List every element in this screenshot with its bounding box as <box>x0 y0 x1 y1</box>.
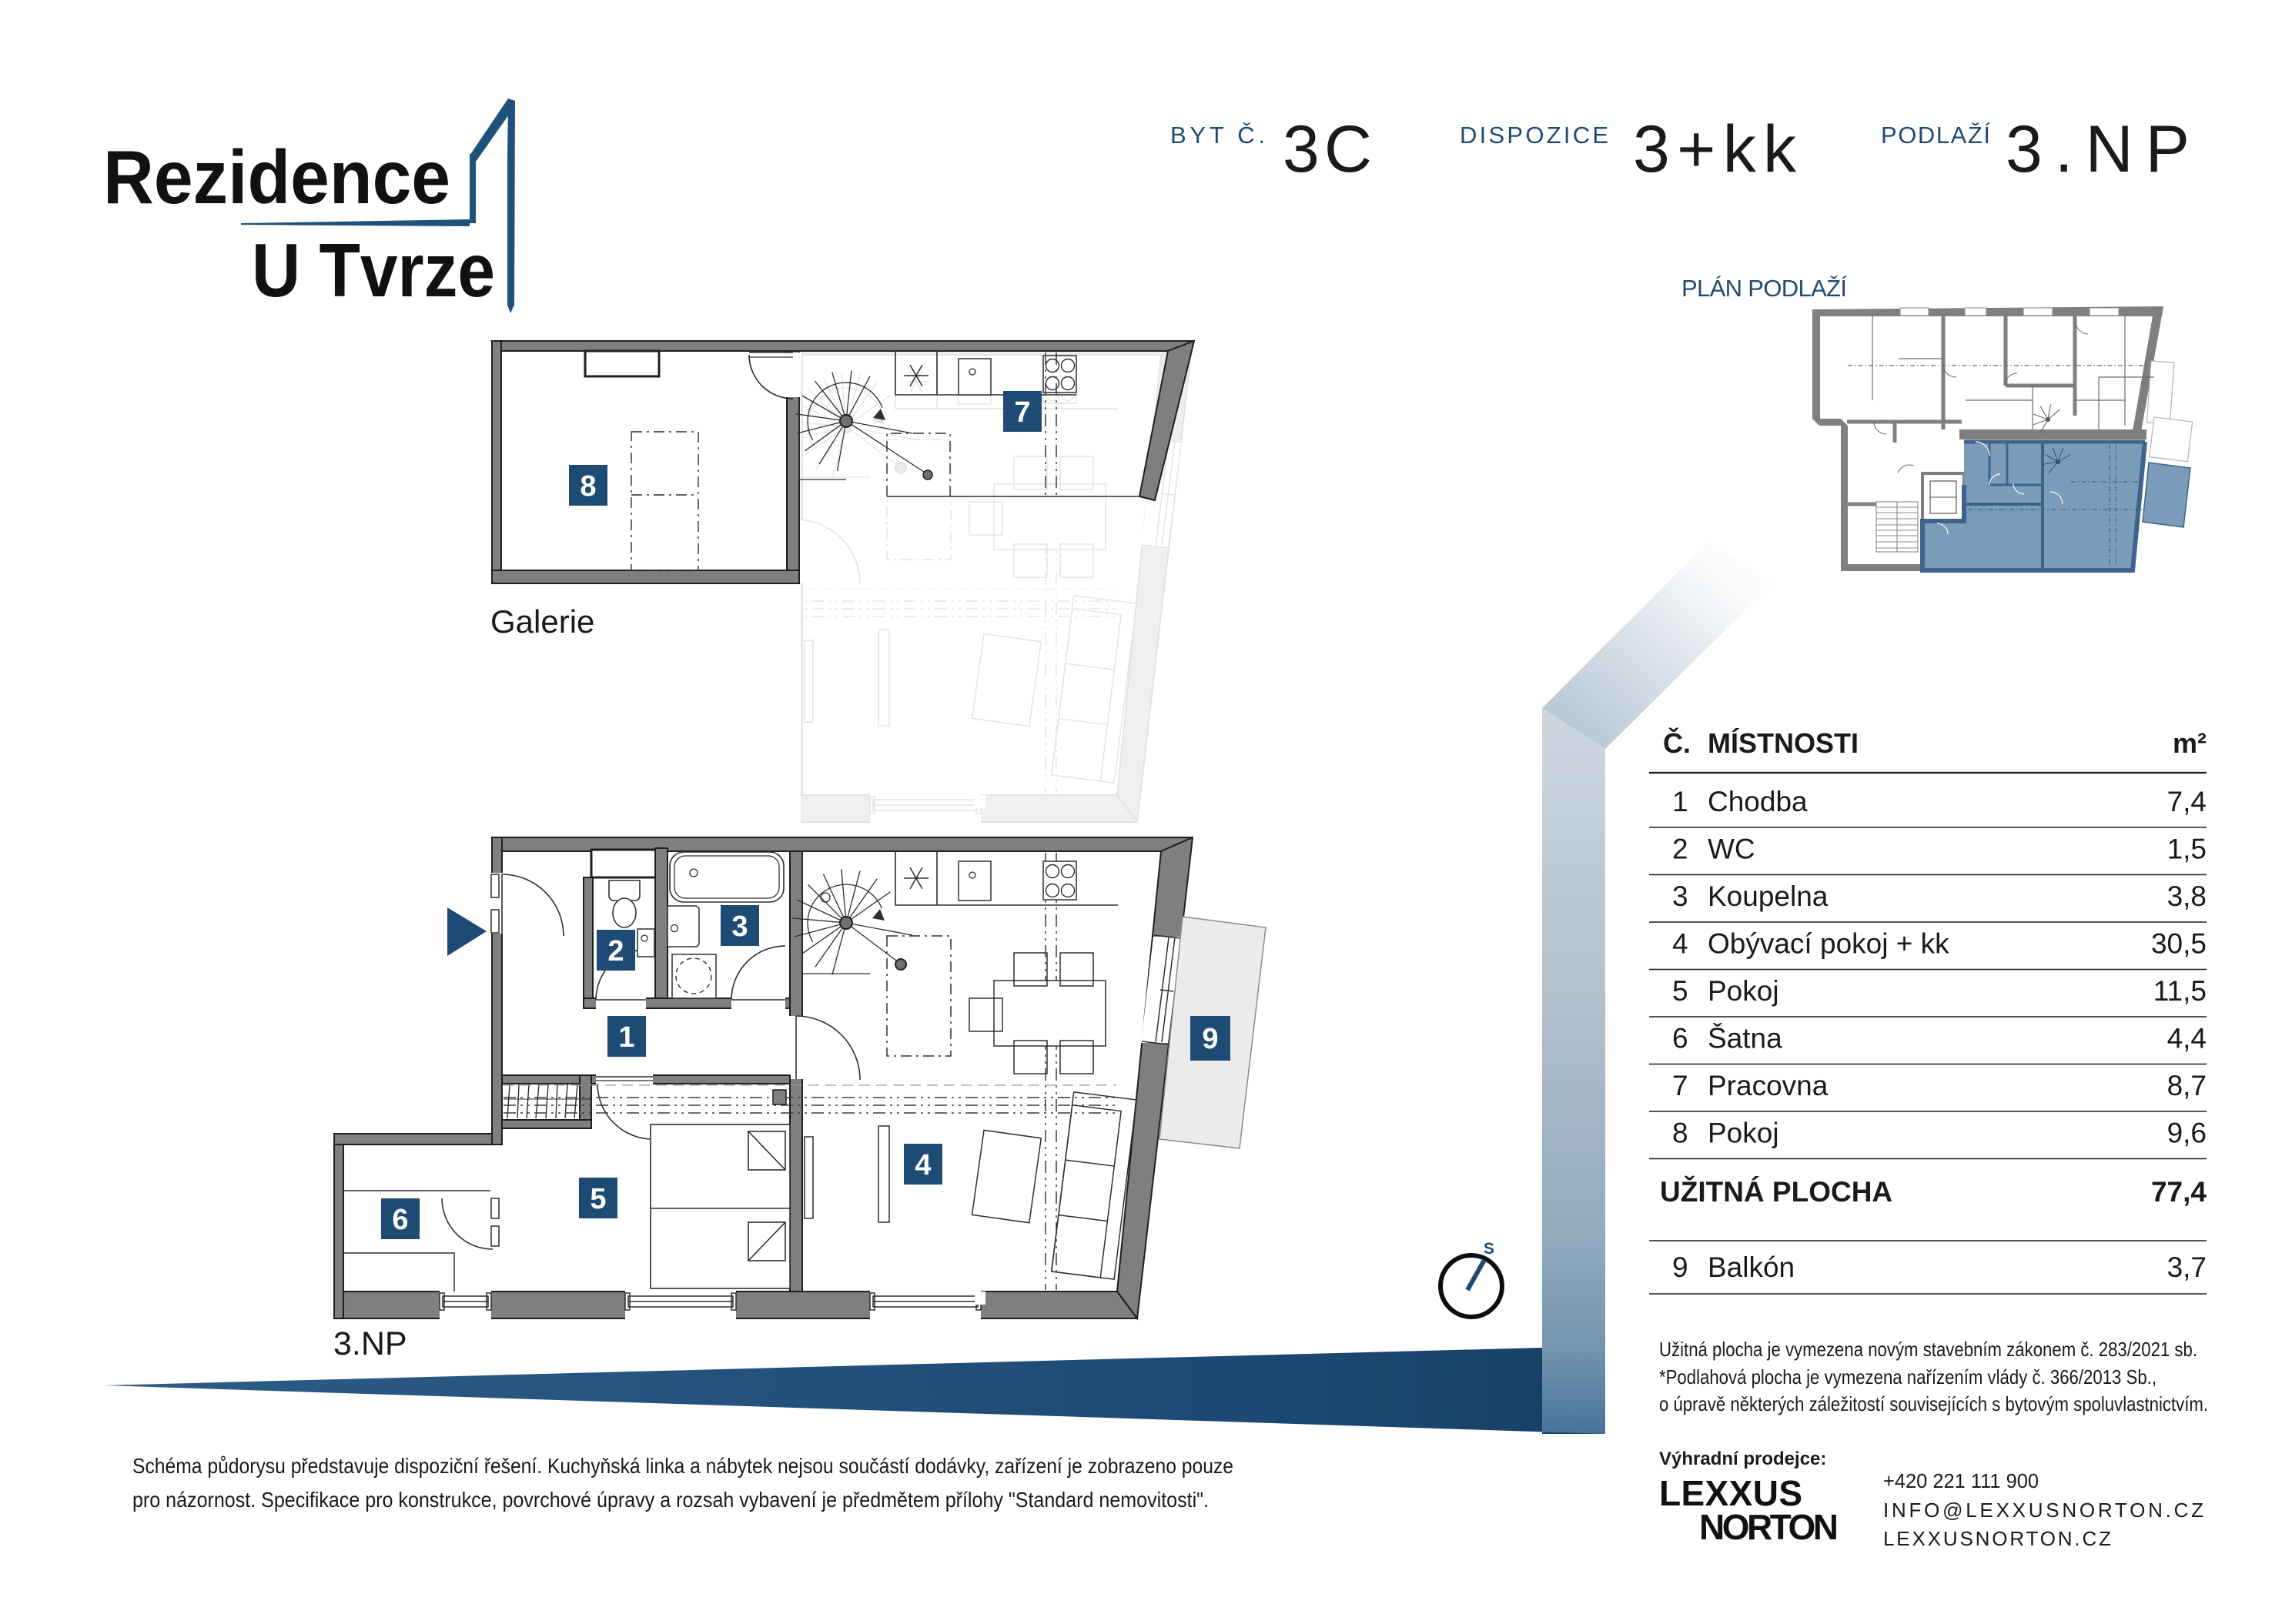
svg-text:Rezidence: Rezidence <box>103 135 450 219</box>
svg-text:BYT Č.: BYT Č. <box>1170 122 1265 149</box>
svg-text:4: 4 <box>1672 928 1688 960</box>
svg-text:3,8: 3,8 <box>2167 881 2207 912</box>
svg-text:8: 8 <box>1672 1118 1688 1149</box>
svg-text:MÍSTNOSTI: MÍSTNOSTI <box>1708 727 1859 759</box>
svg-text:7,4: 7,4 <box>2167 786 2207 817</box>
svg-text:1: 1 <box>1672 786 1688 817</box>
svg-text:INFO@LEXXUSNORTON.CZ: INFO@LEXXUSNORTON.CZ <box>1883 1499 2203 1522</box>
svg-text:7: 7 <box>1014 396 1030 429</box>
svg-text:2: 2 <box>607 935 624 967</box>
svg-text:Obývací pokoj + kk: Obývací pokoj + kk <box>1708 928 1949 960</box>
svg-text:DISPOZICE: DISPOZICE <box>1460 122 1608 149</box>
svg-text:9: 9 <box>1202 1023 1218 1055</box>
svg-text:S: S <box>1484 1240 1494 1258</box>
svg-text:3: 3 <box>731 911 748 943</box>
svg-text:Galerie: Galerie <box>490 603 594 640</box>
svg-text:Chodba: Chodba <box>1708 786 1808 817</box>
svg-text:o úpravě některých záležitostí: o úpravě některých záležitostí souvisejí… <box>1659 1392 2208 1415</box>
svg-text:9: 9 <box>1672 1251 1688 1283</box>
svg-text:U Tvrze: U Tvrze <box>252 228 495 312</box>
svg-text:30,5: 30,5 <box>2151 928 2207 960</box>
svg-text:PODLAŽÍ: PODLAŽÍ <box>1881 122 1990 149</box>
svg-text:UŽITNÁ PLOCHA: UŽITNÁ PLOCHA <box>1660 1175 1892 1208</box>
svg-text:4,4: 4,4 <box>2167 1023 2207 1054</box>
svg-text:4: 4 <box>915 1149 931 1181</box>
svg-text:m²: m² <box>2173 727 2207 759</box>
svg-text:5: 5 <box>590 1183 606 1215</box>
svg-text:3.NP: 3.NP <box>333 1325 407 1362</box>
svg-text:+420 221 111 900: +420 221 111 900 <box>1883 1469 2039 1492</box>
svg-text:Pokoj: Pokoj <box>1708 1118 1779 1149</box>
svg-text:Balkón: Balkón <box>1708 1251 1795 1283</box>
svg-text:Šatna: Šatna <box>1708 1023 1782 1054</box>
svg-text:1,5: 1,5 <box>2167 834 2207 865</box>
svg-text:6: 6 <box>1672 1023 1688 1054</box>
svg-text:Č.: Č. <box>1663 727 1691 759</box>
svg-text:WC: WC <box>1708 834 1755 865</box>
svg-text:Koupelna: Koupelna <box>1708 881 1829 912</box>
svg-text:Výhradní prodejce:: Výhradní prodejce: <box>1659 1449 1826 1469</box>
svg-text:Pracovna: Pracovna <box>1708 1070 1829 1101</box>
svg-text:NORTON: NORTON <box>1699 1507 1839 1547</box>
svg-text:PLÁN PODLAŽÍ: PLÁN PODLAŽÍ <box>1681 275 1847 302</box>
svg-text:11,5: 11,5 <box>2153 975 2207 1007</box>
svg-text:8: 8 <box>580 470 596 503</box>
svg-text:pro názornost. Specifikace pro: pro názornost. Specifikace pro konstrukc… <box>132 1488 1209 1512</box>
svg-text:3: 3 <box>1672 881 1688 912</box>
svg-text:9,6: 9,6 <box>2167 1118 2207 1149</box>
svg-text:1: 1 <box>618 1021 634 1054</box>
svg-text:6: 6 <box>392 1204 408 1236</box>
svg-text:77,4: 77,4 <box>2151 1176 2207 1208</box>
svg-text:LEXXUSNORTON.CZ: LEXXUSNORTON.CZ <box>1883 1527 2111 1550</box>
svg-text:3.NP: 3.NP <box>2006 112 2190 186</box>
svg-text:8,7: 8,7 <box>2167 1070 2207 1101</box>
svg-text:2: 2 <box>1672 834 1688 865</box>
svg-text:5: 5 <box>1672 975 1688 1007</box>
svg-text:7: 7 <box>1672 1070 1688 1101</box>
svg-text:3+kk: 3+kk <box>1633 112 1797 186</box>
svg-text:Užitná plocha je vymezena nový: Užitná plocha je vymezena novým stavební… <box>1659 1338 2197 1361</box>
svg-text:Schéma půdorysu představuje di: Schéma půdorysu představuje dispoziční ř… <box>132 1454 1233 1478</box>
svg-text:Pokoj: Pokoj <box>1708 975 1779 1007</box>
svg-text:3C: 3C <box>1283 112 1372 186</box>
svg-text:3,7: 3,7 <box>2167 1251 2207 1283</box>
svg-text:*Podlahová plocha je vymezena: *Podlahová plocha je vymezena nařízením … <box>1659 1365 2156 1388</box>
